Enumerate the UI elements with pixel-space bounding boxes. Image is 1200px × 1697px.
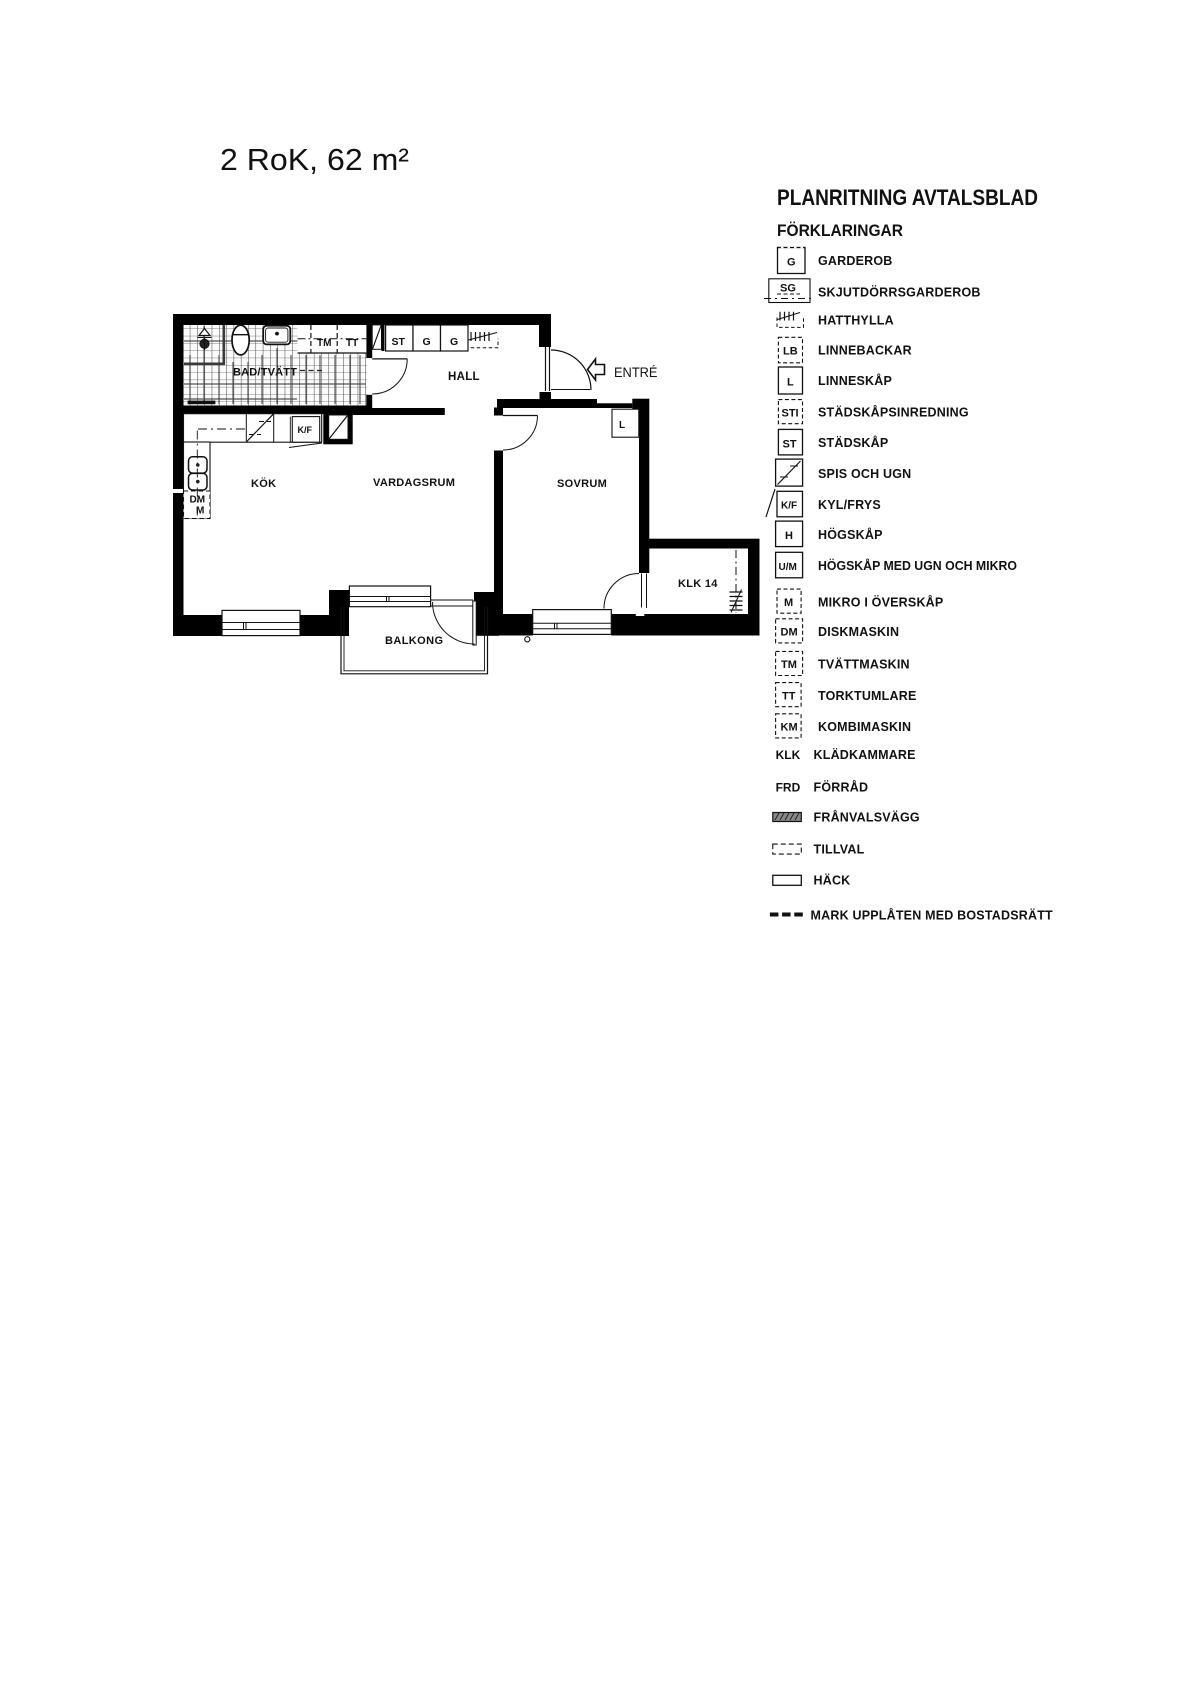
svg-text:TVÄTTMASKIN: TVÄTTMASKIN: [818, 657, 910, 672]
svg-text:LINNEBACKAR: LINNEBACKAR: [818, 344, 912, 358]
svg-text:G: G: [450, 336, 458, 348]
svg-text:STÄDSKÅP: STÄDSKÅP: [818, 435, 888, 450]
svg-text:KYL/FRYS: KYL/FRYS: [818, 498, 881, 512]
svg-text:HÖGSKÅP: HÖGSKÅP: [818, 527, 883, 542]
svg-text:SOVRUM: SOVRUM: [557, 478, 607, 490]
svg-text:BAD/TVÄTT: BAD/TVÄTT: [233, 366, 297, 379]
svg-text:ST: ST: [392, 336, 406, 348]
svg-text:K/F: K/F: [298, 425, 313, 435]
svg-text:STI: STI: [782, 408, 799, 420]
svg-text:MIKRO I ÖVERSKÅP: MIKRO I ÖVERSKÅP: [818, 595, 943, 610]
svg-text:TT: TT: [346, 338, 358, 349]
svg-text:GARDEROB: GARDEROB: [818, 254, 893, 268]
svg-text:KM: KM: [781, 722, 798, 734]
svg-text:KLK: KLK: [776, 748, 801, 762]
svg-text:2 RoK, 62 m²: 2 RoK, 62 m²: [220, 143, 409, 177]
svg-text:TM: TM: [781, 659, 797, 671]
svg-text:KLK 14: KLK 14: [678, 578, 718, 590]
svg-text:ENTRÉ: ENTRÉ: [614, 365, 658, 380]
svg-text:SKJUTDÖRRSGARDEROB: SKJUTDÖRRSGARDEROB: [818, 285, 981, 300]
svg-text:HATTHYLLA: HATTHYLLA: [818, 314, 894, 328]
svg-text:FRD: FRD: [776, 781, 801, 795]
svg-text:U/M: U/M: [779, 562, 797, 573]
svg-text:L: L: [787, 377, 794, 389]
svg-text:HÄCK: HÄCK: [814, 873, 851, 888]
svg-text:KLÄDKAMMARE: KLÄDKAMMARE: [814, 747, 916, 762]
svg-text:VARDAGSRUM: VARDAGSRUM: [373, 477, 455, 489]
svg-text:M: M: [784, 597, 793, 609]
svg-text:STÄDSKÅPSINREDNING: STÄDSKÅPSINREDNING: [818, 405, 969, 420]
svg-text:DISKMASKIN: DISKMASKIN: [818, 625, 899, 639]
svg-text:TM: TM: [317, 338, 331, 349]
svg-text:H: H: [785, 530, 793, 542]
svg-text:FRÅNVALSVÄGG: FRÅNVALSVÄGG: [814, 810, 920, 825]
svg-text:HÖGSKÅP MED UGN OCH MIKRO: HÖGSKÅP MED UGN OCH MIKRO: [818, 558, 1017, 573]
svg-text:BALKONG: BALKONG: [385, 635, 443, 647]
svg-text:TT: TT: [782, 691, 796, 703]
svg-text:KOMBIMASKIN: KOMBIMASKIN: [818, 720, 911, 734]
svg-text:TILLVAL: TILLVAL: [814, 843, 865, 857]
svg-text:MARK UPPLÅTEN MED BOSTADSRÄTT: MARK UPPLÅTEN MED BOSTADSRÄTT: [811, 908, 1054, 923]
svg-text:SG: SG: [780, 283, 796, 295]
svg-text:PLANRITNING AVTALSBLAD: PLANRITNING AVTALSBLAD: [777, 185, 1038, 210]
svg-text:FÖRRÅD: FÖRRÅD: [814, 780, 869, 795]
svg-text:LINNESKÅP: LINNESKÅP: [818, 373, 892, 388]
svg-text:LB: LB: [783, 346, 798, 358]
svg-text:FÖRKLARINGAR: FÖRKLARINGAR: [777, 221, 903, 240]
svg-text:ST: ST: [783, 439, 797, 451]
svg-text:KÖK: KÖK: [251, 477, 276, 490]
svg-text:G: G: [787, 257, 796, 269]
svg-text:K/F: K/F: [781, 501, 797, 512]
svg-text:SPIS OCH UGN: SPIS OCH UGN: [818, 467, 911, 481]
svg-text:HALL: HALL: [448, 371, 480, 383]
svg-text:TORKTUMLARE: TORKTUMLARE: [818, 689, 917, 703]
svg-text:DM: DM: [781, 627, 798, 639]
svg-text:L: L: [619, 420, 625, 431]
svg-text:G: G: [423, 336, 431, 348]
